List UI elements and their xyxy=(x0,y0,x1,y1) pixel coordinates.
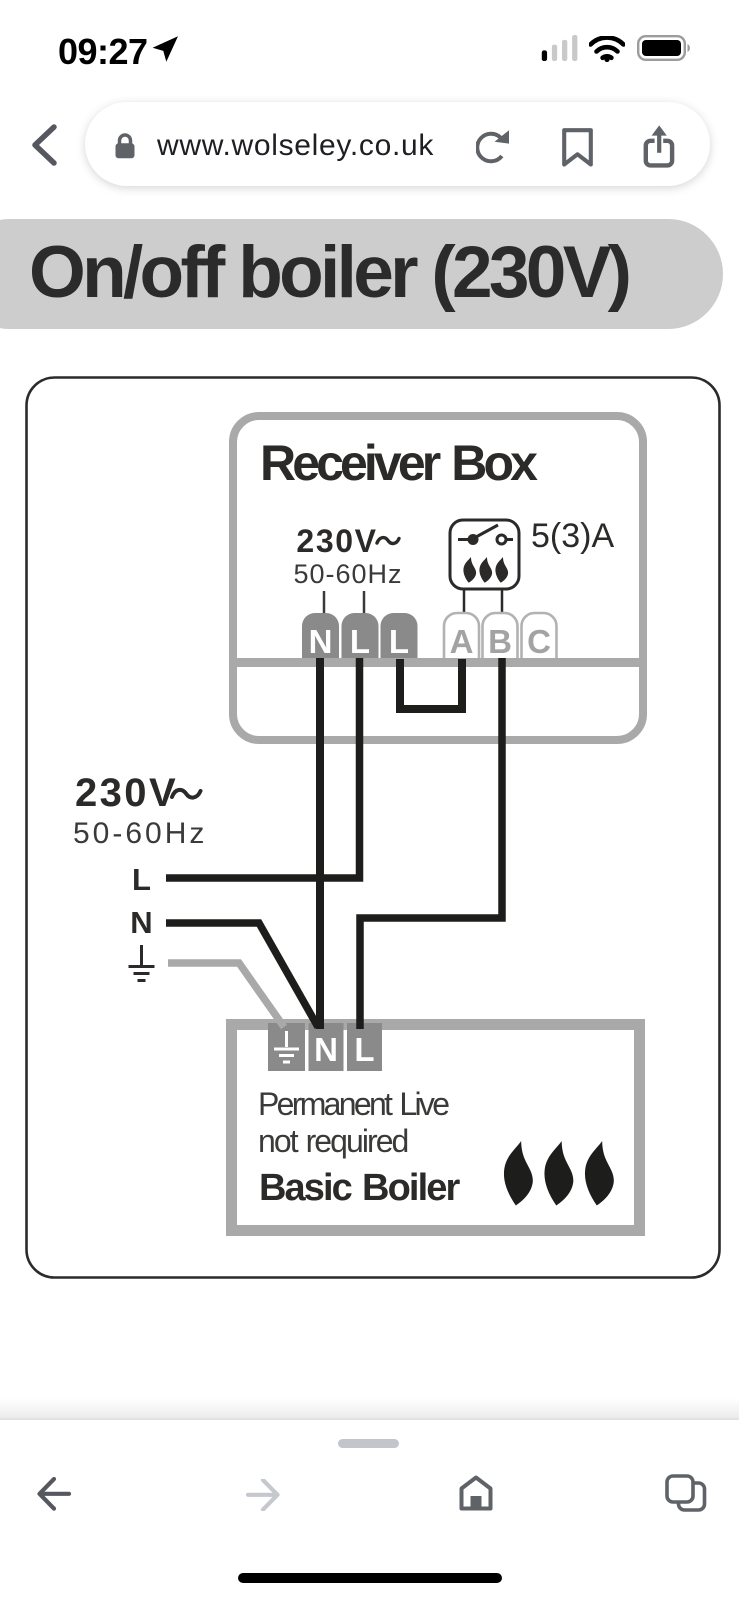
svg-text:B: B xyxy=(488,623,512,660)
svg-text:C: C xyxy=(527,623,551,660)
svg-text:L: L xyxy=(354,1031,374,1068)
svg-text:50-60Hz: 50-60Hz xyxy=(293,559,402,589)
svg-text:L: L xyxy=(132,862,151,897)
svg-text:230V: 230V xyxy=(296,523,377,559)
svg-text:5(3)A: 5(3)A xyxy=(531,517,614,555)
svg-text:not required: not required xyxy=(258,1123,408,1159)
svg-text:N: N xyxy=(130,905,152,940)
svg-text:230V: 230V xyxy=(75,771,178,815)
svg-text:N: N xyxy=(309,623,333,660)
svg-text:N: N xyxy=(314,1031,338,1068)
svg-text:50-60Hz: 50-60Hz xyxy=(73,817,207,850)
svg-text:A: A xyxy=(450,623,474,660)
svg-text:L: L xyxy=(389,623,409,660)
svg-text:Permanent Live: Permanent Live xyxy=(258,1086,449,1122)
svg-text:Basic Boiler: Basic Boiler xyxy=(259,1167,460,1209)
svg-text:Receiver Box: Receiver Box xyxy=(260,435,538,491)
svg-text:L: L xyxy=(350,623,370,660)
